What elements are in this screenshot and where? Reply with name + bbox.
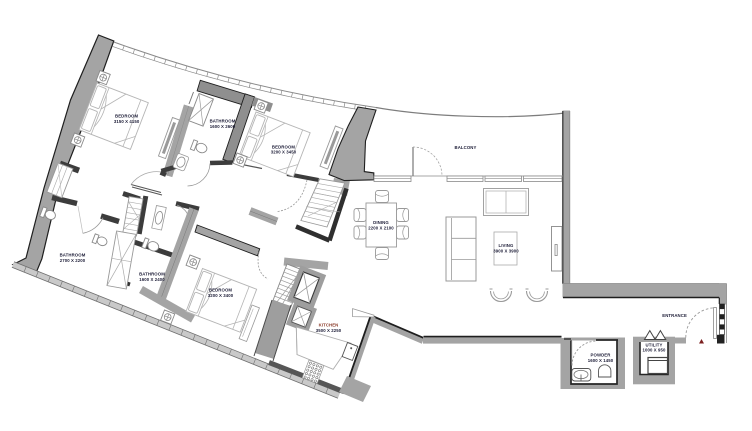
svg-text:3200 X 3450: 3200 X 3450 xyxy=(271,150,297,155)
svg-text:3900 X 3900: 3900 X 3900 xyxy=(493,248,519,253)
svg-text:BALCONY: BALCONY xyxy=(455,145,477,150)
svg-text:UTILITY: UTILITY xyxy=(646,342,663,347)
svg-text:DINING: DINING xyxy=(373,220,389,225)
svg-text:BEDROOM: BEDROOM xyxy=(115,114,138,119)
svg-text:POWDER: POWDER xyxy=(591,353,612,358)
svg-text:1600 X 1450: 1600 X 1450 xyxy=(588,358,614,363)
svg-text:1000 X 950: 1000 X 950 xyxy=(643,348,666,353)
svg-text:2700 X 2200: 2700 X 2200 xyxy=(60,258,86,263)
svg-text:3150 X 4150: 3150 X 4150 xyxy=(114,119,140,124)
svg-text:1600 X 2600: 1600 X 2600 xyxy=(210,124,236,129)
svg-text:3200 X 3400: 3200 X 3400 xyxy=(208,293,234,298)
svg-text:KITCHEN: KITCHEN xyxy=(319,323,339,328)
svg-text:BEDROOM: BEDROOM xyxy=(272,144,295,149)
svg-text:BATHROOM: BATHROOM xyxy=(139,272,165,277)
svg-text:BATHROOM: BATHROOM xyxy=(210,119,236,124)
svg-text:3500 X 2250: 3500 X 2250 xyxy=(316,328,342,333)
svg-text:ENTRANCE: ENTRANCE xyxy=(662,313,687,318)
svg-text:BEDROOM: BEDROOM xyxy=(209,288,232,293)
svg-text:LIVING: LIVING xyxy=(499,243,514,248)
svg-text:2200 X 2100: 2200 X 2100 xyxy=(368,225,394,230)
svg-text:1600 X 2400: 1600 X 2400 xyxy=(139,277,165,282)
svg-text:BATHROOM: BATHROOM xyxy=(60,253,86,258)
